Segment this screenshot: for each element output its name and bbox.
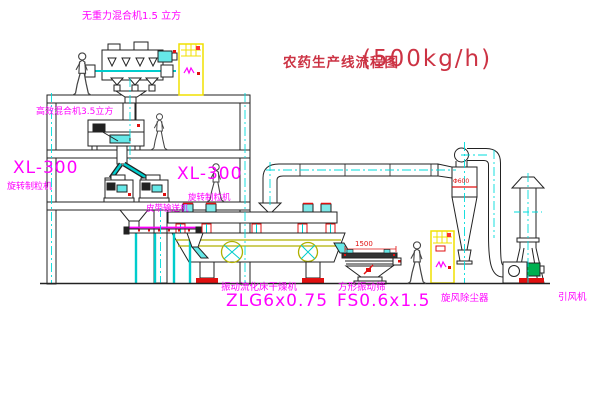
control-cabinet-roof bbox=[179, 44, 203, 95]
exhaust-duct bbox=[259, 164, 452, 212]
label-granulator-right-model: XL-300 bbox=[177, 166, 242, 183]
label-top-mixer: 无重力混合机1.5 立方 bbox=[82, 12, 181, 22]
label-dryer-model: ZLG6x0.75 bbox=[226, 293, 328, 310]
dimension-cyclone-spec: Φ600 bbox=[453, 179, 469, 185]
label-induced-draft-fan: 引风机 bbox=[558, 293, 587, 303]
control-cabinet-ground bbox=[431, 231, 454, 283]
fan-motor bbox=[527, 263, 540, 276]
induced-draft-fan bbox=[503, 262, 544, 284]
person-figure-ground bbox=[408, 242, 426, 284]
label-floor2-mixer: 高效混合机3.5立方 bbox=[36, 108, 113, 117]
label-granulator-left-model: XL-300 bbox=[13, 160, 78, 177]
label-cyclone: 旋风除尘器 bbox=[441, 294, 489, 304]
drawing-title-capacity: (500kg/h) bbox=[362, 48, 492, 71]
label-granulator-left-name: 旋转制粒机 bbox=[7, 183, 52, 192]
dimension-sieve-length: 1500 bbox=[355, 241, 373, 248]
vibrating-sieve bbox=[342, 246, 401, 284]
label-belt-conveyor: 皮带输送机 bbox=[146, 205, 189, 214]
label-sieve-model: FS0.6x1.5 bbox=[337, 293, 430, 310]
label-granulator-right-name: 旋转制粒机 bbox=[188, 194, 231, 203]
flow-diagram-canvas: 农药生产线流程图 (500kg/h) 无重力混合机1.5 立方 高效混合机3.5… bbox=[0, 0, 600, 403]
discharge-chute-and-column bbox=[120, 210, 167, 283]
person-figure-floor2 bbox=[151, 114, 167, 150]
